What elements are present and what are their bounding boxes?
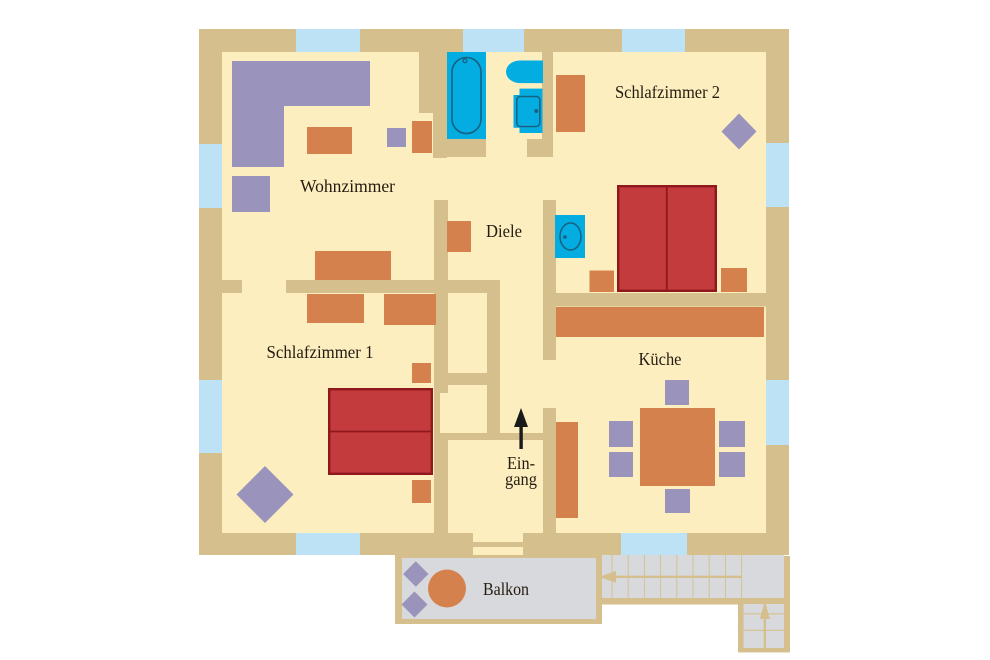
svg-text:Schlafzimmer 1: Schlafzimmer 1 bbox=[267, 342, 374, 362]
svg-text:Schlafzimmer 2: Schlafzimmer 2 bbox=[615, 82, 720, 102]
svg-text:Diele: Diele bbox=[486, 221, 522, 241]
svg-text:gang: gang bbox=[505, 469, 537, 489]
svg-text:Balkon: Balkon bbox=[483, 579, 529, 599]
svg-text:Wohnzimmer: Wohnzimmer bbox=[300, 176, 395, 196]
svg-text:Küche: Küche bbox=[639, 349, 682, 369]
